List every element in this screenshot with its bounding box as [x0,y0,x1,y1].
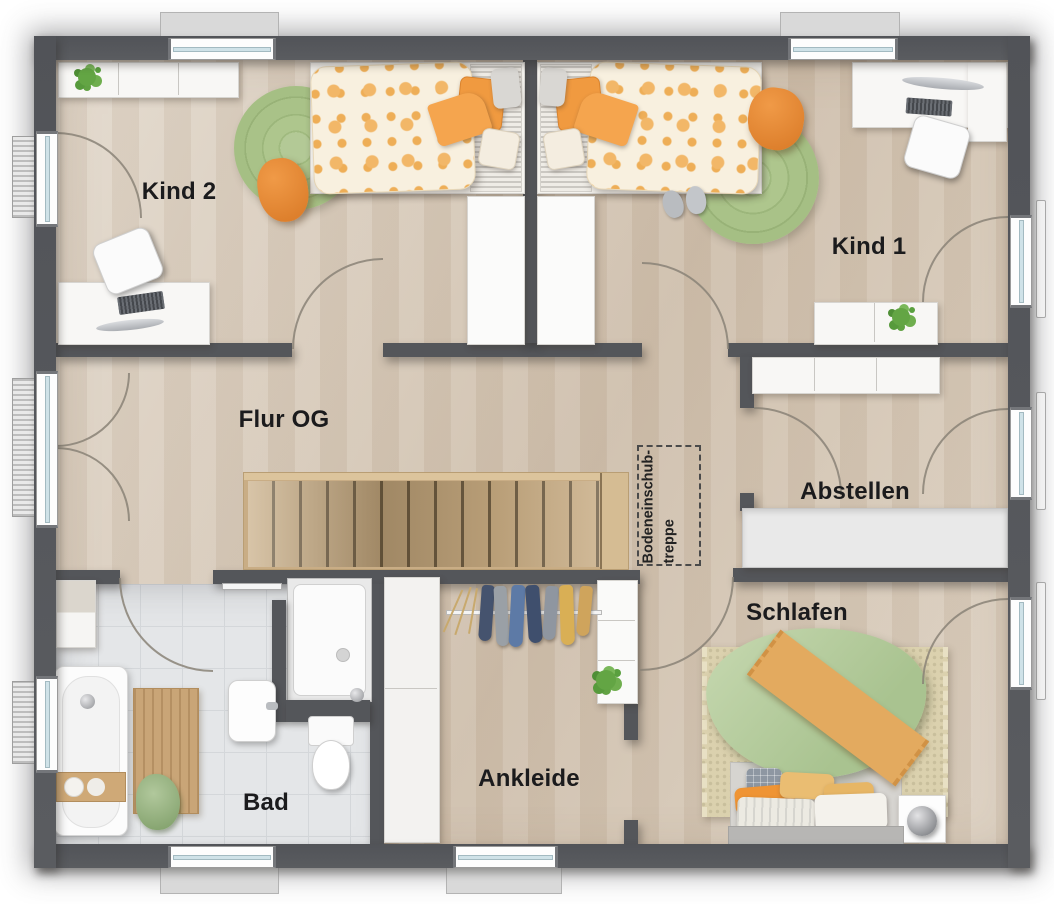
potted-plant [892,308,910,326]
room-label-bad: Bad [243,789,289,817]
radiator [12,681,36,764]
shutter-rail [1036,392,1046,510]
room-label-abstellen: Abstellen [800,478,910,506]
toilet-bowl [312,740,350,790]
wall [383,343,642,357]
wardrobe [467,196,525,345]
tub-faucet [80,694,95,709]
window [36,131,58,227]
bed-footboard [728,826,904,846]
storage-shelf [742,508,1008,568]
staircase [243,472,629,570]
wall [733,568,1008,582]
window-sill [160,866,279,894]
loft-hatch-box: Bodeneinschub- treppe [637,445,701,566]
sink [228,680,276,742]
towel-rail [222,583,282,590]
desk [58,282,210,345]
shower-tray [293,584,366,696]
wall [56,343,292,357]
tall-cabinet [384,577,440,843]
radiator [12,136,36,218]
window [168,846,276,868]
shutter-rail [1036,200,1046,318]
loft-hatch-label: Bodeneinschub- treppe [639,447,699,564]
potted-plant [78,68,96,86]
shutter-rail [1036,582,1046,700]
shower-drain [336,648,350,662]
floorplan-canvas: Bodeneinschub- treppe Kind 2 Kind 1 Flur… [0,0,1054,904]
stair-landing [600,473,628,569]
sideboard [752,357,940,394]
window-sill [446,866,562,894]
wall [624,820,638,844]
window [788,38,898,60]
french-window [36,371,58,528]
window [36,676,58,773]
potted-plant [596,670,616,690]
window [453,846,558,868]
rolled-towels [64,777,84,797]
sink-faucet [266,702,278,710]
pillow [490,67,522,110]
room-label-ankleide: Ankleide [478,765,580,793]
wall [370,584,384,844]
window [168,38,276,60]
window [1010,407,1032,500]
hanging-clothes [559,585,575,645]
wall [523,60,537,343]
pillow [538,67,568,108]
wall [728,343,1008,357]
shower-faucet [350,688,364,702]
sphere-lamp [907,806,937,836]
radiator [12,378,36,517]
desk-return [968,62,1007,142]
wardrobe [537,196,595,345]
pillow [477,127,521,171]
room-label-flur-og: Flur OG [239,406,330,434]
bath-cabinet [56,580,96,648]
window [1010,215,1032,308]
pillow [542,127,586,171]
sideboard [814,302,938,345]
green-towel [136,774,180,830]
room-label-schlafen: Schlafen [746,599,848,627]
room-label-kind1: Kind 1 [832,233,907,261]
window [1010,597,1032,690]
keyboard [905,97,952,116]
room-label-kind2: Kind 2 [142,178,217,206]
